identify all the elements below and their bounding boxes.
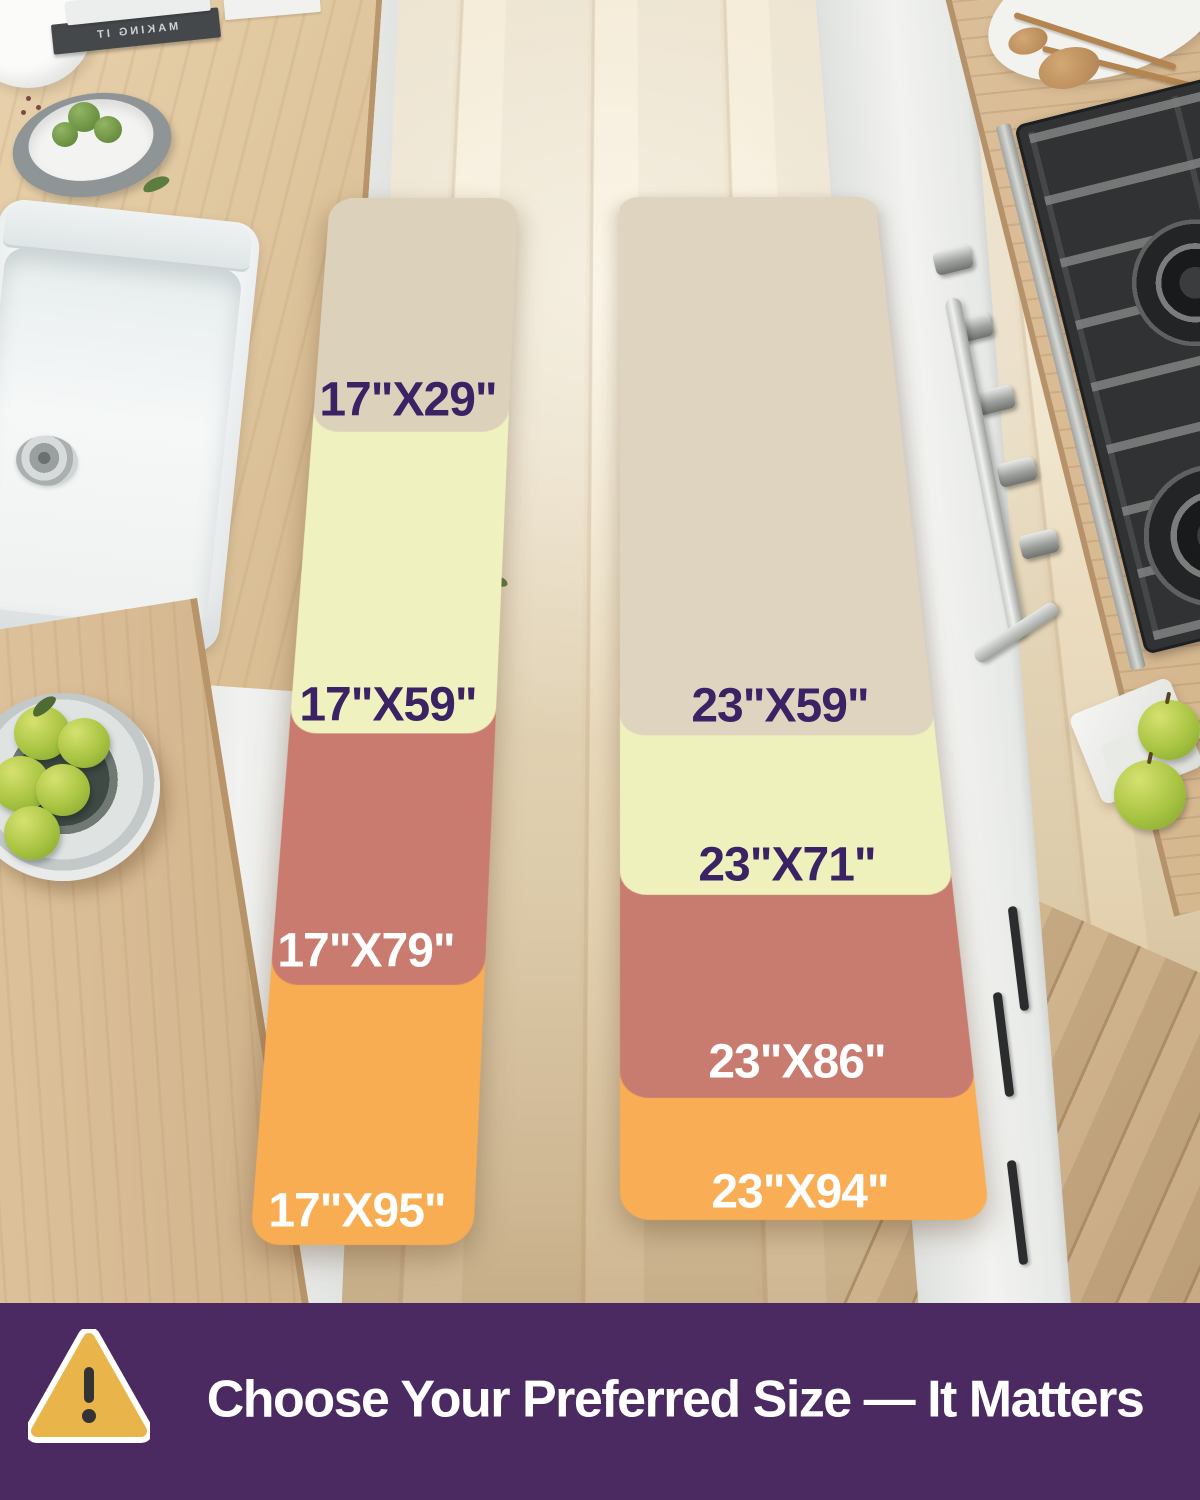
product-infographic: MAKING IT [0,0,1200,1500]
size-label-23x94: 23"X94" [711,1165,888,1220]
size-label-23x59: 23"X59" [691,679,868,734]
peppercorn [26,96,31,101]
lime-fruit [52,122,78,147]
green-apple [58,718,110,768]
peppercorn [36,105,41,110]
size-label-23x86: 23"X86" [708,1035,885,1090]
green-apple [1114,760,1186,830]
size-label-17x29: 17"X29" [319,373,496,428]
book-spine-text: MAKING IT [93,21,178,42]
green-apple [1138,700,1200,760]
size-label-17x79: 17"X79" [277,924,454,979]
bottom-banner: Choose Your Preferred Size — It Matters [0,1303,1200,1500]
green-apple [4,806,60,860]
warning-triangle-icon [28,1329,150,1445]
peppercorn [21,110,26,115]
banner-text: Choose Your Preferred Size — It Matters [158,1369,1192,1429]
size-label-17x95: 17"X95" [268,1184,445,1239]
farmhouse-sink [0,197,262,654]
size-label-23x71: 23"X71" [698,838,875,893]
lime-fruit [94,116,122,143]
size-label-17x59: 17"X59" [299,678,476,733]
